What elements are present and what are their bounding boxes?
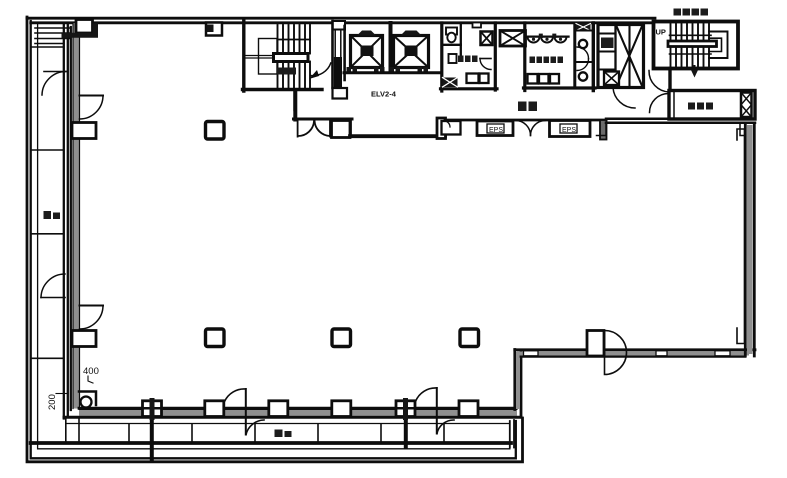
svg-text:EPS: EPS [489, 127, 503, 134]
svg-text:400: 400 [83, 366, 99, 377]
svg-text:UP: UP [656, 28, 666, 37]
svg-text:200: 200 [47, 394, 58, 410]
svg-text:ELV2-4: ELV2-4 [371, 90, 397, 99]
svg-text:EPS: EPS [562, 127, 576, 134]
